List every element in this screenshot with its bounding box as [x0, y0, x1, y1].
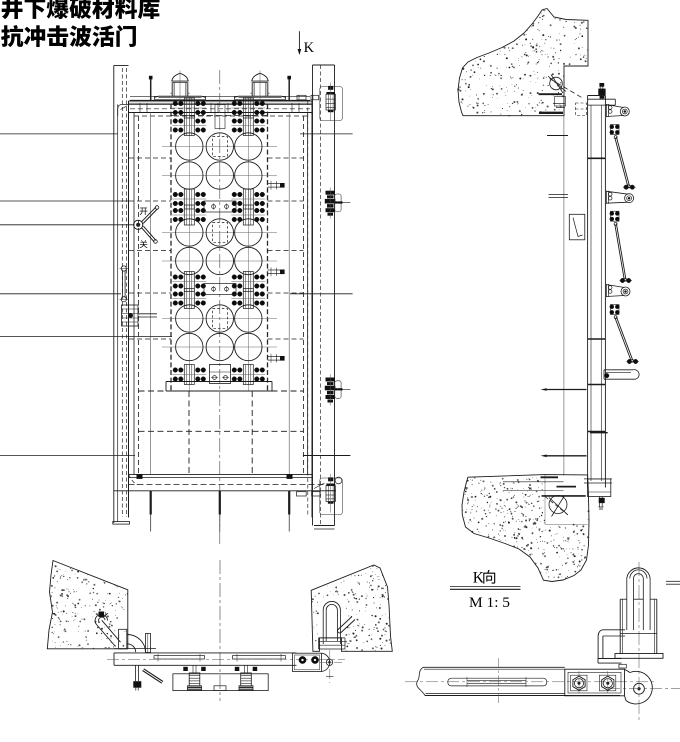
svg-text:K: K	[304, 40, 315, 56]
svg-text:M 1: 5: M 1: 5	[469, 595, 510, 611]
svg-text:K: K	[473, 569, 485, 586]
